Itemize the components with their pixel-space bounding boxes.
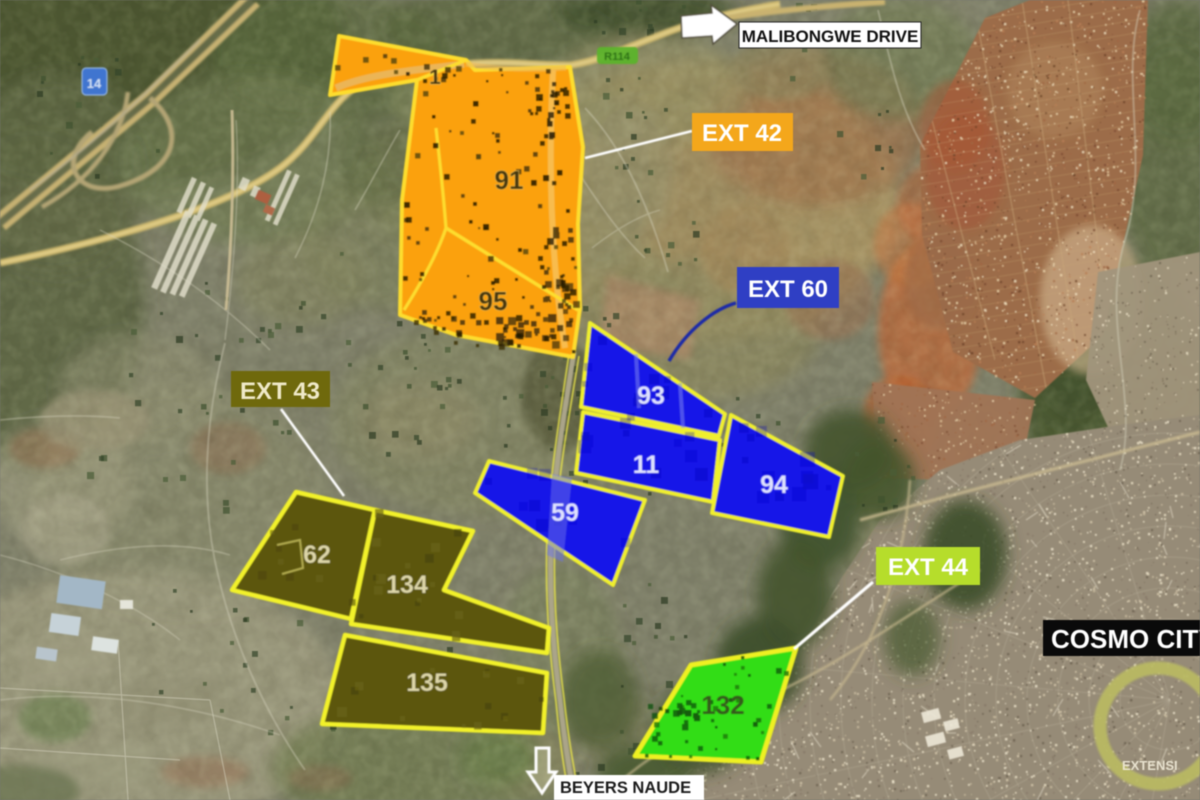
svg-text:R114: R114 (604, 51, 631, 63)
svg-text:EXT 60: EXT 60 (748, 276, 828, 303)
svg-text:59: 59 (551, 499, 579, 527)
svg-text:EXT 43: EXT 43 (240, 378, 320, 405)
svg-text:134: 134 (386, 571, 428, 599)
svg-text:62: 62 (303, 541, 331, 569)
svg-text:MALIBONGWE DRIVE: MALIBONGWE DRIVE (742, 27, 919, 46)
svg-text:95: 95 (479, 286, 508, 316)
svg-text:EXT 44: EXT 44 (888, 554, 969, 581)
svg-text:132: 132 (701, 690, 744, 720)
svg-text:14: 14 (87, 76, 102, 91)
svg-text:91: 91 (495, 165, 524, 195)
svg-text:135: 135 (406, 669, 448, 697)
svg-text:EXT 42: EXT 42 (702, 120, 782, 147)
svg-text:EXTENSI: EXTENSI (1122, 758, 1178, 773)
svg-text:1: 1 (429, 66, 441, 89)
svg-text:93: 93 (637, 382, 665, 410)
svg-text:11: 11 (633, 451, 660, 479)
svg-text:94: 94 (760, 471, 788, 499)
svg-text:COSMO CITY: COSMO CITY (1051, 624, 1200, 654)
svg-text:BEYERS NAUDE: BEYERS NAUDE (560, 779, 691, 797)
